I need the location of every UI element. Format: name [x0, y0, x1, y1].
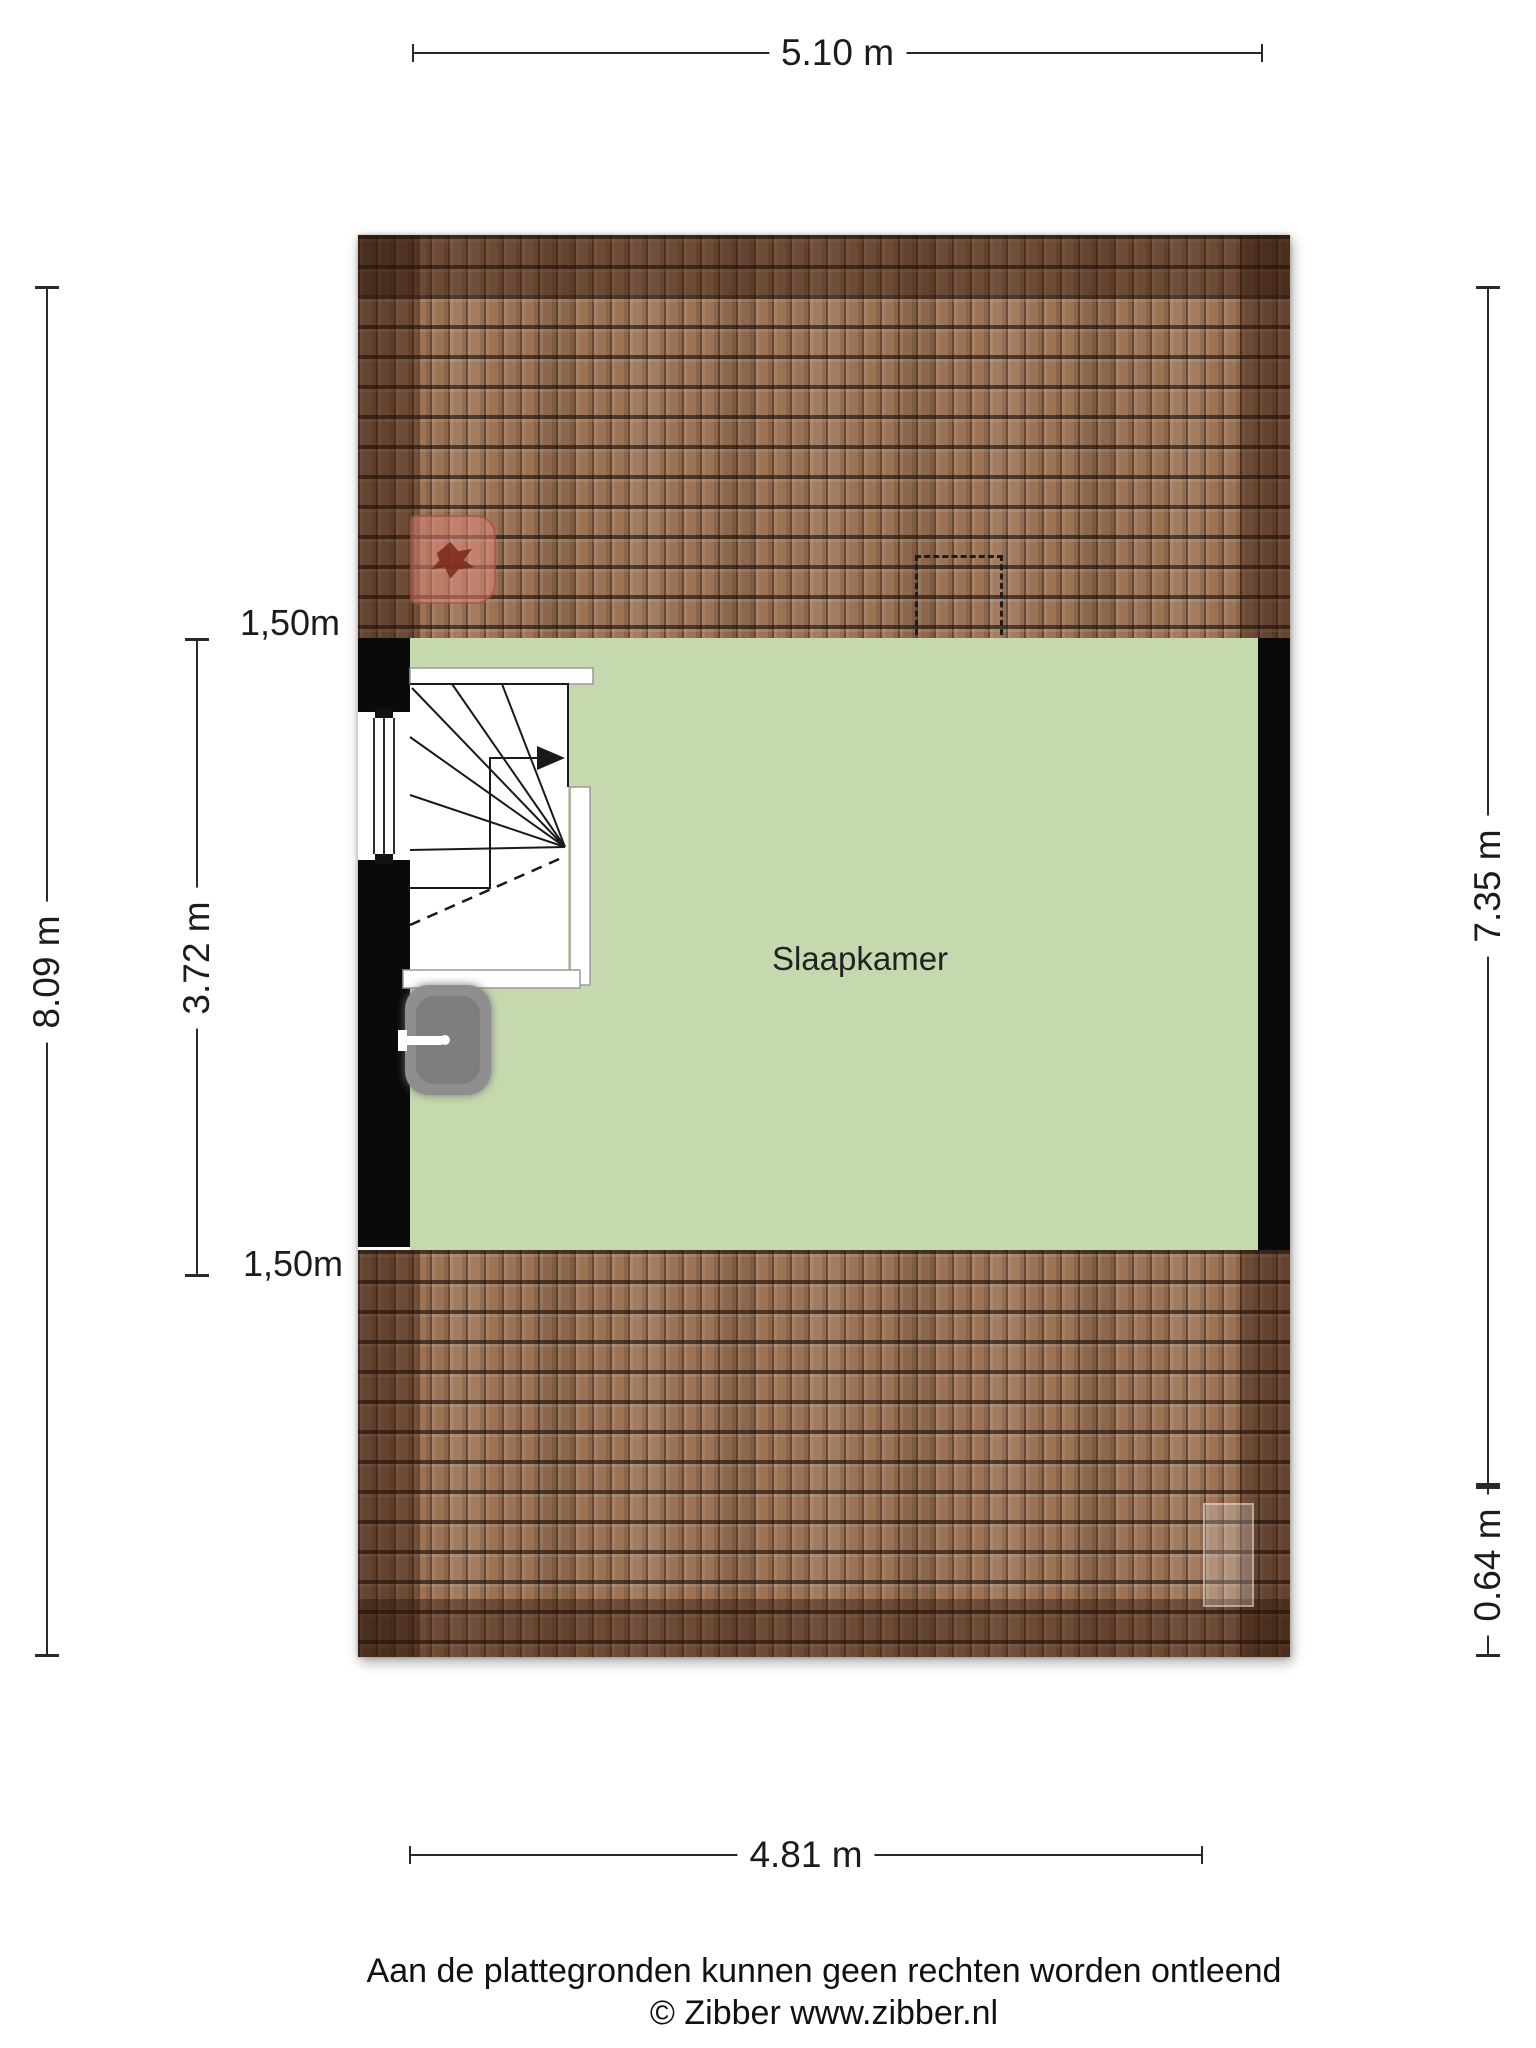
dimension-tick	[1261, 44, 1263, 62]
dimension-label-right-total: 7.35 m	[1467, 815, 1509, 956]
dimension-tick	[1201, 1846, 1203, 1864]
chimney-outline	[1203, 1503, 1254, 1607]
stair-landing-top	[410, 668, 593, 684]
wall-window-glazing	[373, 718, 395, 854]
floorplan-canvas: Slaapkamer	[358, 235, 1290, 1657]
roof-bottom	[358, 1250, 1290, 1657]
dimension-label-bottom-width: 4.81 m	[737, 1834, 874, 1876]
wall-window-cap-bottom	[375, 854, 393, 864]
roof-shading-top	[358, 235, 1290, 295]
dimension-label-left-total: 8.09 m	[26, 901, 68, 1042]
stairs	[400, 660, 600, 1000]
roof-shading-right	[1240, 235, 1290, 638]
dimension-tick	[1476, 286, 1500, 289]
footer-disclaimer: Aan de plattegronden kunnen geen rechten…	[358, 1950, 1290, 1992]
dimension-tick	[35, 286, 59, 289]
sink-faucet-icon	[402, 1036, 442, 1045]
wall-window-cap-top	[375, 708, 393, 718]
wall-window-glazing-line	[383, 718, 385, 854]
dimension-label-right-roof: 0.64 m	[1467, 1494, 1509, 1635]
dimension-label-left-room: 3.72 m	[176, 887, 218, 1028]
roof-shading-bottom	[358, 1599, 1290, 1657]
roof-shading-left	[358, 1250, 420, 1657]
dimension-label-top-width: 5.10 m	[769, 32, 906, 74]
roof-window-handle-icon	[426, 535, 480, 581]
dimension-tick	[1476, 1654, 1500, 1657]
wall-right	[1258, 638, 1290, 1250]
footer: Aan de plattegronden kunnen geen rechten…	[358, 1950, 1290, 2034]
stair-rail-right	[570, 787, 590, 985]
room-label: Slaapkamer	[735, 940, 985, 978]
knee-wall-label-bottom: 1,50m	[183, 1243, 343, 1285]
floorplan-page: 5.10 m 4.81 m 8.09 m 3.72 m 7.35 m 0.64 …	[0, 0, 1536, 2048]
dimension-tick	[35, 1654, 59, 1657]
knee-wall-label-top: 1,50m	[180, 602, 340, 644]
dimension-tick	[1476, 1486, 1500, 1489]
roof-top	[358, 235, 1290, 638]
sink-faucet-icon	[440, 1035, 450, 1045]
footer-copyright: © Zibber www.zibber.nl	[358, 1992, 1290, 2034]
dimension-tick	[412, 44, 414, 62]
dimension-tick	[409, 1846, 411, 1864]
roof-window	[410, 515, 496, 604]
